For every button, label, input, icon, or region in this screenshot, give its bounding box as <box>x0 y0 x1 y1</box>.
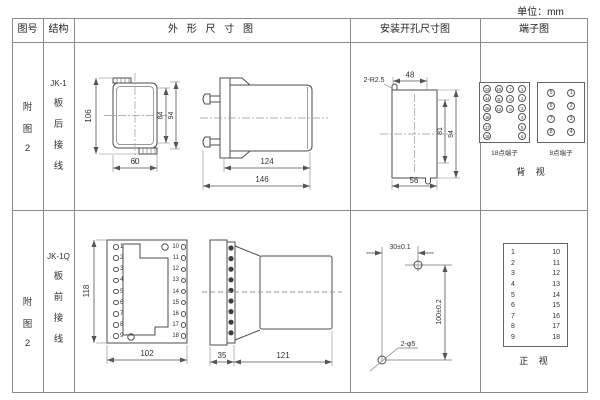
header-install: 安装开孔尺寸图 <box>350 21 480 39</box>
terminal-number: 14 <box>552 292 560 299</box>
dim-60: 60 <box>131 157 140 166</box>
terminal-number: 16 <box>552 313 560 320</box>
header-structure: 结构 <box>43 21 74 39</box>
terminal-point: 9 <box>506 105 514 113</box>
terminal-number: 9 <box>511 334 515 341</box>
front-terminals-left: 123456789 <box>113 244 123 339</box>
row1-model: JK-1 <box>50 79 66 88</box>
terminal-col: 101112131415161718 <box>552 249 560 341</box>
dim-146: 146 <box>255 175 269 184</box>
fig-no-char: 图 <box>23 121 33 135</box>
terminal-point: 1 <box>567 89 575 97</box>
row1-fig-no: 附图2 <box>12 99 43 154</box>
side-view-dimensions: 124 146 <box>203 150 310 190</box>
terminal-number: 17 <box>552 323 560 330</box>
terminal-point: 8 <box>547 128 555 136</box>
terminal-point: 1 <box>518 85 526 93</box>
terminal-number: 7 <box>511 313 515 320</box>
side-view-q-dimensions: 35 121 <box>210 331 332 366</box>
terminal-box-8pt: 5678 1234 <box>537 82 585 143</box>
terminal-number: 3 <box>511 270 515 277</box>
terminal-number: 11 <box>552 260 560 267</box>
terminal-point: 11 <box>495 95 503 103</box>
terminal-point: 5 <box>547 89 555 97</box>
dim-121: 121 <box>276 351 290 360</box>
fig-no-char: 2 <box>25 338 30 349</box>
row2-structure: JK-1Q 板前接线 <box>43 252 74 345</box>
fig-no-char: 附 <box>23 294 33 308</box>
fig-no-char: 附 <box>23 99 33 113</box>
terminal-number: 13 <box>552 281 560 288</box>
terminal-point: 7 <box>547 115 555 123</box>
front-terminal: 11 <box>173 255 186 261</box>
cutout-dimensions: 2-R2.5 48 81 94 56 <box>363 71 460 191</box>
terminal-point: 6 <box>547 102 555 110</box>
terminal-point: 5 <box>518 123 526 131</box>
dim-102: 102 <box>140 349 154 358</box>
row1-view-label: 背 视 <box>480 165 585 178</box>
terminal-label-8pt: 8点端子 <box>537 147 585 157</box>
dim-124: 124 <box>260 157 274 166</box>
terminal-point: 2 <box>518 94 526 102</box>
front-terminal: 17 <box>172 322 186 328</box>
dim-48: 48 <box>406 71 415 80</box>
terminal-point: 17 <box>483 123 491 131</box>
structure-char: 板 <box>54 268 64 282</box>
row1-structure: JK-1 板后接线 <box>43 79 74 172</box>
row2-view-label: 正 视 <box>503 354 568 367</box>
relay-side-view-q <box>202 240 342 345</box>
terminal-number: 6 <box>511 302 515 309</box>
structure-char: 线 <box>54 331 64 345</box>
front-terminal: 4 <box>113 277 123 283</box>
front-terminals-right: 101112131415161718 <box>166 244 186 339</box>
terminal-number: 1 <box>511 249 515 256</box>
front-view-dimensions: 106 84 94 60 <box>84 78 180 172</box>
front-terminal: 9 <box>113 333 123 339</box>
fig-no-char: 图 <box>23 316 33 330</box>
structure-char: 后 <box>54 116 64 130</box>
terminal-point: 3 <box>567 115 575 123</box>
header-terminal: 端子图 <box>480 21 588 39</box>
header-outline: 外 形 尺 寸 图 <box>74 21 350 39</box>
dim-94: 94 <box>168 112 175 120</box>
terminal-number: 18 <box>552 334 560 341</box>
terminal-point: 18 <box>483 132 491 140</box>
terminal-point: 12 <box>495 105 503 113</box>
front-terminal: 6 <box>113 300 123 306</box>
structure-char: 板 <box>54 95 64 109</box>
terminal-number: 2 <box>511 260 515 267</box>
relay-side-view <box>200 78 328 158</box>
terminal-col: 123456 <box>518 85 526 140</box>
terminal-col: 789 <box>506 85 514 140</box>
terminal-point: 8 <box>506 95 514 103</box>
dim-84: 84 <box>158 112 165 120</box>
front-terminal: 12 <box>172 266 186 272</box>
terminal-label-18pt: 18点端子 <box>479 147 530 157</box>
front-terminal: 5 <box>113 289 123 295</box>
row2-install-drawing: 30±0.1 100±0.2 2-φ5 <box>350 210 480 393</box>
dim-94b: 94 <box>448 130 455 138</box>
row2-fig-no: 附图2 <box>12 294 43 349</box>
dim-holes: 2-φ5 <box>401 341 416 348</box>
structure-char: 接 <box>54 310 64 324</box>
terminal-number: 5 <box>511 292 515 299</box>
row1-install-drawing: 2-R2.5 48 81 94 56 <box>350 42 480 210</box>
terminal-point: 16 <box>483 113 491 121</box>
terminal-point: 3 <box>518 104 526 112</box>
drawing-sheet: 单位：mm 图号 结构 外 形 尺 寸 图 安装开孔尺寸图 端子图 附图2 JK… <box>0 0 600 400</box>
terminal-number: 15 <box>552 302 560 309</box>
front-terminal: 8 <box>113 322 123 328</box>
table-border-col4 <box>480 18 481 393</box>
terminal-point: 15 <box>483 104 491 112</box>
front-terminal: 10 <box>172 244 186 250</box>
terminal-point: 10 <box>495 85 503 93</box>
front-terminal: 14 <box>172 289 186 295</box>
dim-35: 35 <box>218 351 227 360</box>
terminal-point: 13 <box>483 85 491 93</box>
dim-81: 81 <box>437 127 444 135</box>
dim-30: 30±0.1 <box>389 244 410 251</box>
structure-char: 接 <box>54 137 64 151</box>
terminal-number: 8 <box>511 323 515 330</box>
front-terminal: 2 <box>113 255 123 261</box>
front-terminal: 3 <box>113 266 123 272</box>
hole-dimensions: 30±0.1 100±0.2 2-φ5 <box>366 244 445 360</box>
front-terminal: 13 <box>172 277 186 283</box>
terminal-point: 4 <box>518 113 526 121</box>
terminal-point: 6 <box>518 132 526 140</box>
dim-100: 100±0.2 <box>436 299 443 324</box>
terminal-number: 12 <box>552 270 560 277</box>
header-fig-no: 图号 <box>12 21 43 39</box>
front-terminal: 1 <box>113 244 123 250</box>
row1-outline-drawing: 106 84 94 60 <box>74 42 350 210</box>
front-terminal: 15 <box>172 300 186 306</box>
terminal-col: 101112 <box>495 85 503 140</box>
terminal-col: 5678 <box>547 89 555 136</box>
terminal-box-18pt: 131415161718 101112 789 123456 <box>479 82 530 143</box>
terminal-box-front: 123456789 101112131415161718 <box>503 243 568 347</box>
terminal-point: 14 <box>483 94 491 102</box>
terminal-point: 2 <box>567 102 575 110</box>
terminal-point: 4 <box>567 128 575 136</box>
terminal-col: 123456789 <box>511 249 515 341</box>
row2-model: JK-1Q <box>47 252 70 261</box>
terminal-number: 4 <box>511 281 515 288</box>
fig-no-char: 2 <box>25 143 30 154</box>
dim-106: 106 <box>84 109 93 123</box>
terminal-col: 1234 <box>567 89 575 136</box>
terminal-col: 131415161718 <box>483 85 491 140</box>
dim-118: 118 <box>82 284 91 297</box>
terminal-point: 7 <box>506 85 514 93</box>
front-terminal: 18 <box>172 333 186 339</box>
structure-char: 前 <box>54 289 64 303</box>
structure-char: 线 <box>54 158 64 172</box>
unit-note: 单位：mm <box>498 3 583 18</box>
terminal-number: 10 <box>552 249 560 256</box>
dim-notch: 2-R2.5 <box>363 77 384 84</box>
dim-56: 56 <box>410 176 419 185</box>
front-terminal: 7 <box>113 311 123 317</box>
front-terminal: 16 <box>172 311 186 317</box>
